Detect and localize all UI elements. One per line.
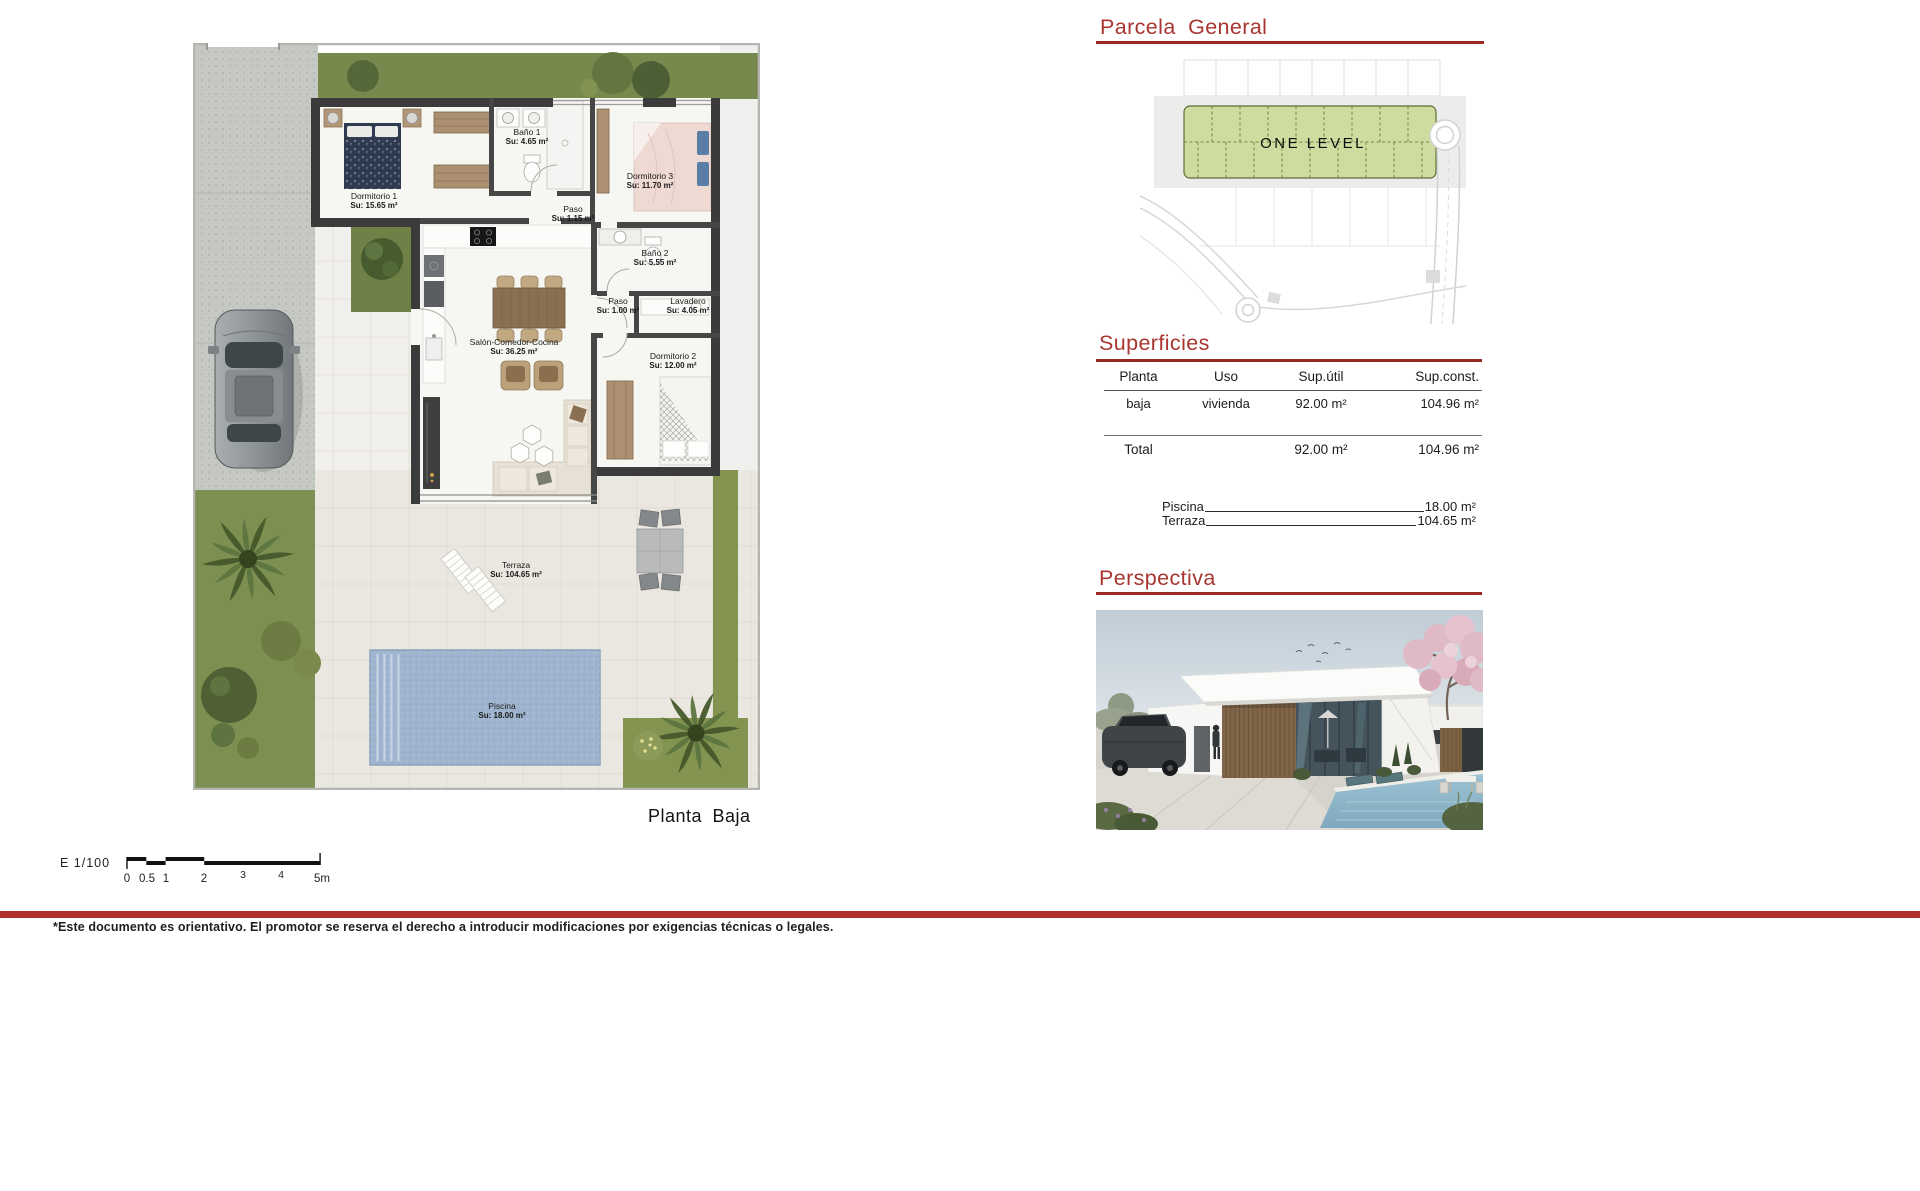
side-path	[720, 43, 760, 470]
scale-bar	[118, 851, 333, 873]
col-sup-const: Sup.const.	[1371, 369, 1483, 384]
room-label-lavadero: Lavadero Su: 4.05 m²	[667, 296, 710, 316]
gate-opening	[207, 43, 279, 47]
room-label-terraza: Terraza Su: 104.65 m²	[490, 560, 542, 580]
total-row: Total 92.00 m² 104.96 m²	[1096, 442, 1483, 457]
superficies-title: Superficies	[1099, 331, 1210, 356]
room-label-dormitorio1: Dormitorio 1 Su: 15.65 m²	[350, 191, 397, 211]
extra-terraza: Terraza 104.65 m²	[1162, 513, 1476, 528]
total-sup-util: 92.00 m²	[1271, 442, 1371, 457]
gate-post-left	[206, 43, 208, 50]
room-label-paso1: Paso Su: 1.15 m²	[552, 204, 595, 224]
col-uso: Uso	[1181, 369, 1271, 384]
scale-tick-2: 2	[201, 873, 207, 885]
cell-uso: vivienda	[1181, 396, 1271, 411]
flower-bush	[633, 731, 663, 761]
scale-tick-3: 3	[240, 869, 246, 881]
table-row: baja vivienda 92.00 m² 104.96 m²	[1096, 396, 1483, 411]
extra-piscina-label: Piscina	[1162, 499, 1204, 514]
garden-top	[318, 52, 760, 99]
extra-piscina-line	[1205, 510, 1424, 512]
footnote: *Este documento es orientativo. El promo…	[53, 920, 833, 934]
extra-terraza-line	[1206, 524, 1416, 526]
parcela-rule	[1096, 41, 1484, 44]
floorplan-drawing	[193, 43, 760, 790]
total-empty	[1181, 442, 1271, 457]
extra-piscina: Piscina 18.00 m²	[1162, 499, 1476, 514]
total-label: Total	[1096, 442, 1181, 457]
extra-terraza-value: 104.65 m²	[1417, 513, 1476, 528]
scale-label: E 1/100	[60, 856, 110, 870]
extra-piscina-value: 18.00 m²	[1425, 499, 1476, 514]
parcela-title: Parcela General	[1100, 15, 1267, 40]
scale-tick-05: 0.5	[139, 873, 155, 885]
col-sup-util: Sup.útil	[1271, 369, 1371, 384]
plan-caption: Planta Baja	[648, 806, 751, 827]
room-label-bano1: Baño 1 Su: 4.65 m²	[506, 127, 549, 147]
tv-wall	[423, 397, 440, 489]
footer-red-bar	[0, 911, 1920, 918]
perspectiva-rule	[1096, 592, 1482, 595]
dining-set	[493, 276, 565, 342]
room-label-paso2: Paso Su: 1.00 m²	[597, 296, 640, 316]
parcela-map: ONE LEVEL	[1140, 46, 1490, 326]
room-label-dormitorio3: Dormitorio 3 Su: 11.70 m²	[627, 171, 674, 191]
gate-post-right	[278, 43, 280, 50]
car	[208, 310, 303, 472]
extra-terraza-label: Terraza	[1162, 513, 1205, 528]
cell-sup-const: 104.96 m²	[1371, 396, 1483, 411]
col-planta: Planta	[1096, 369, 1181, 384]
scale-tick-4: 4	[278, 869, 284, 881]
planter	[351, 220, 413, 312]
superficies-rule	[1096, 359, 1482, 362]
room-label-bano2: Baño 2 Su: 5.55 m²	[634, 248, 677, 268]
room-label-piscina: Piscina Su: 18.00 m²	[478, 701, 525, 721]
perspectiva-title: Perspectiva	[1099, 566, 1216, 591]
front-door-opening	[411, 309, 420, 345]
room-label-salon: Salón-Comedor-Cocina Su: 36.25 m²	[470, 337, 559, 357]
cell-sup-util: 92.00 m²	[1271, 396, 1371, 411]
cell-planta: baja	[1096, 396, 1181, 411]
scale-tick-1: 1	[163, 873, 169, 885]
total-sup-const: 104.96 m²	[1371, 442, 1483, 457]
header-underline	[1104, 390, 1482, 391]
scale-tick-0: 0	[124, 873, 130, 885]
perspective-render	[1096, 610, 1483, 830]
room-label-dormitorio2: Dormitorio 2 Su: 12.00 m²	[649, 351, 696, 371]
total-divider	[1104, 435, 1482, 436]
garden-right-strip	[713, 470, 738, 750]
plot-label: ONE LEVEL	[1260, 135, 1366, 152]
one-level-plot: ONE LEVEL	[1184, 106, 1436, 178]
scale-tick-5m: 5m	[314, 873, 330, 885]
superficies-header: Planta Uso Sup.útil Sup.const.	[1096, 369, 1483, 384]
